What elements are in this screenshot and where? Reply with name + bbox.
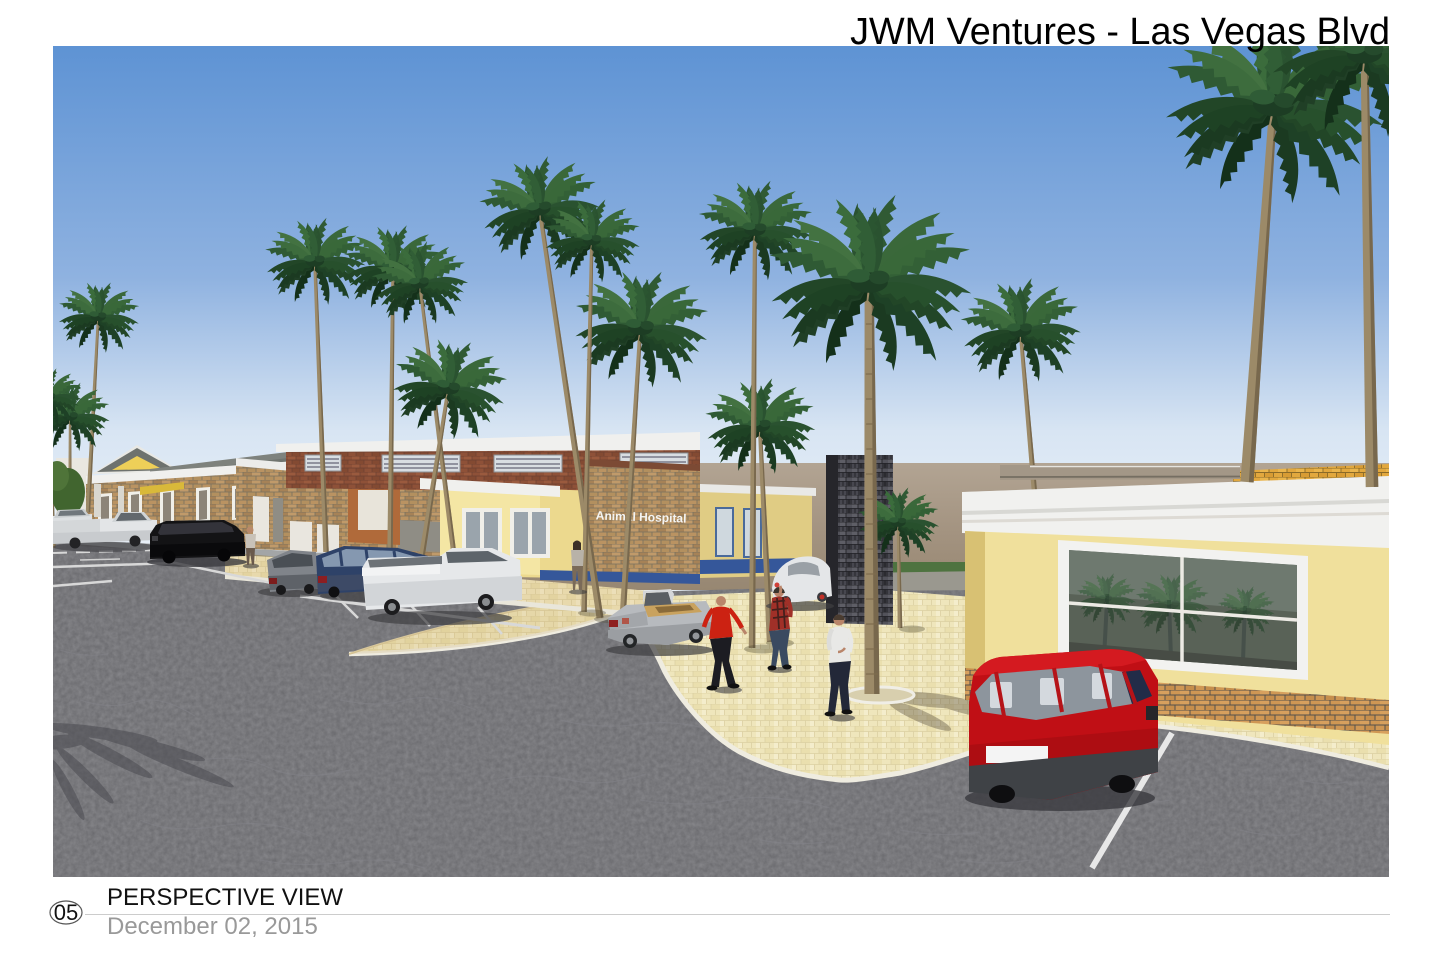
svg-text:JWM Ventures - Las Vegas Blvd: JWM Ventures - Las Vegas Blvd — [850, 11, 1390, 53]
svg-text:PERSPECTIVE VIEW: PERSPECTIVE VIEW — [107, 884, 343, 911]
svg-text:05: 05 — [54, 900, 78, 925]
svg-text:December 02, 2015: December 02, 2015 — [107, 913, 318, 940]
